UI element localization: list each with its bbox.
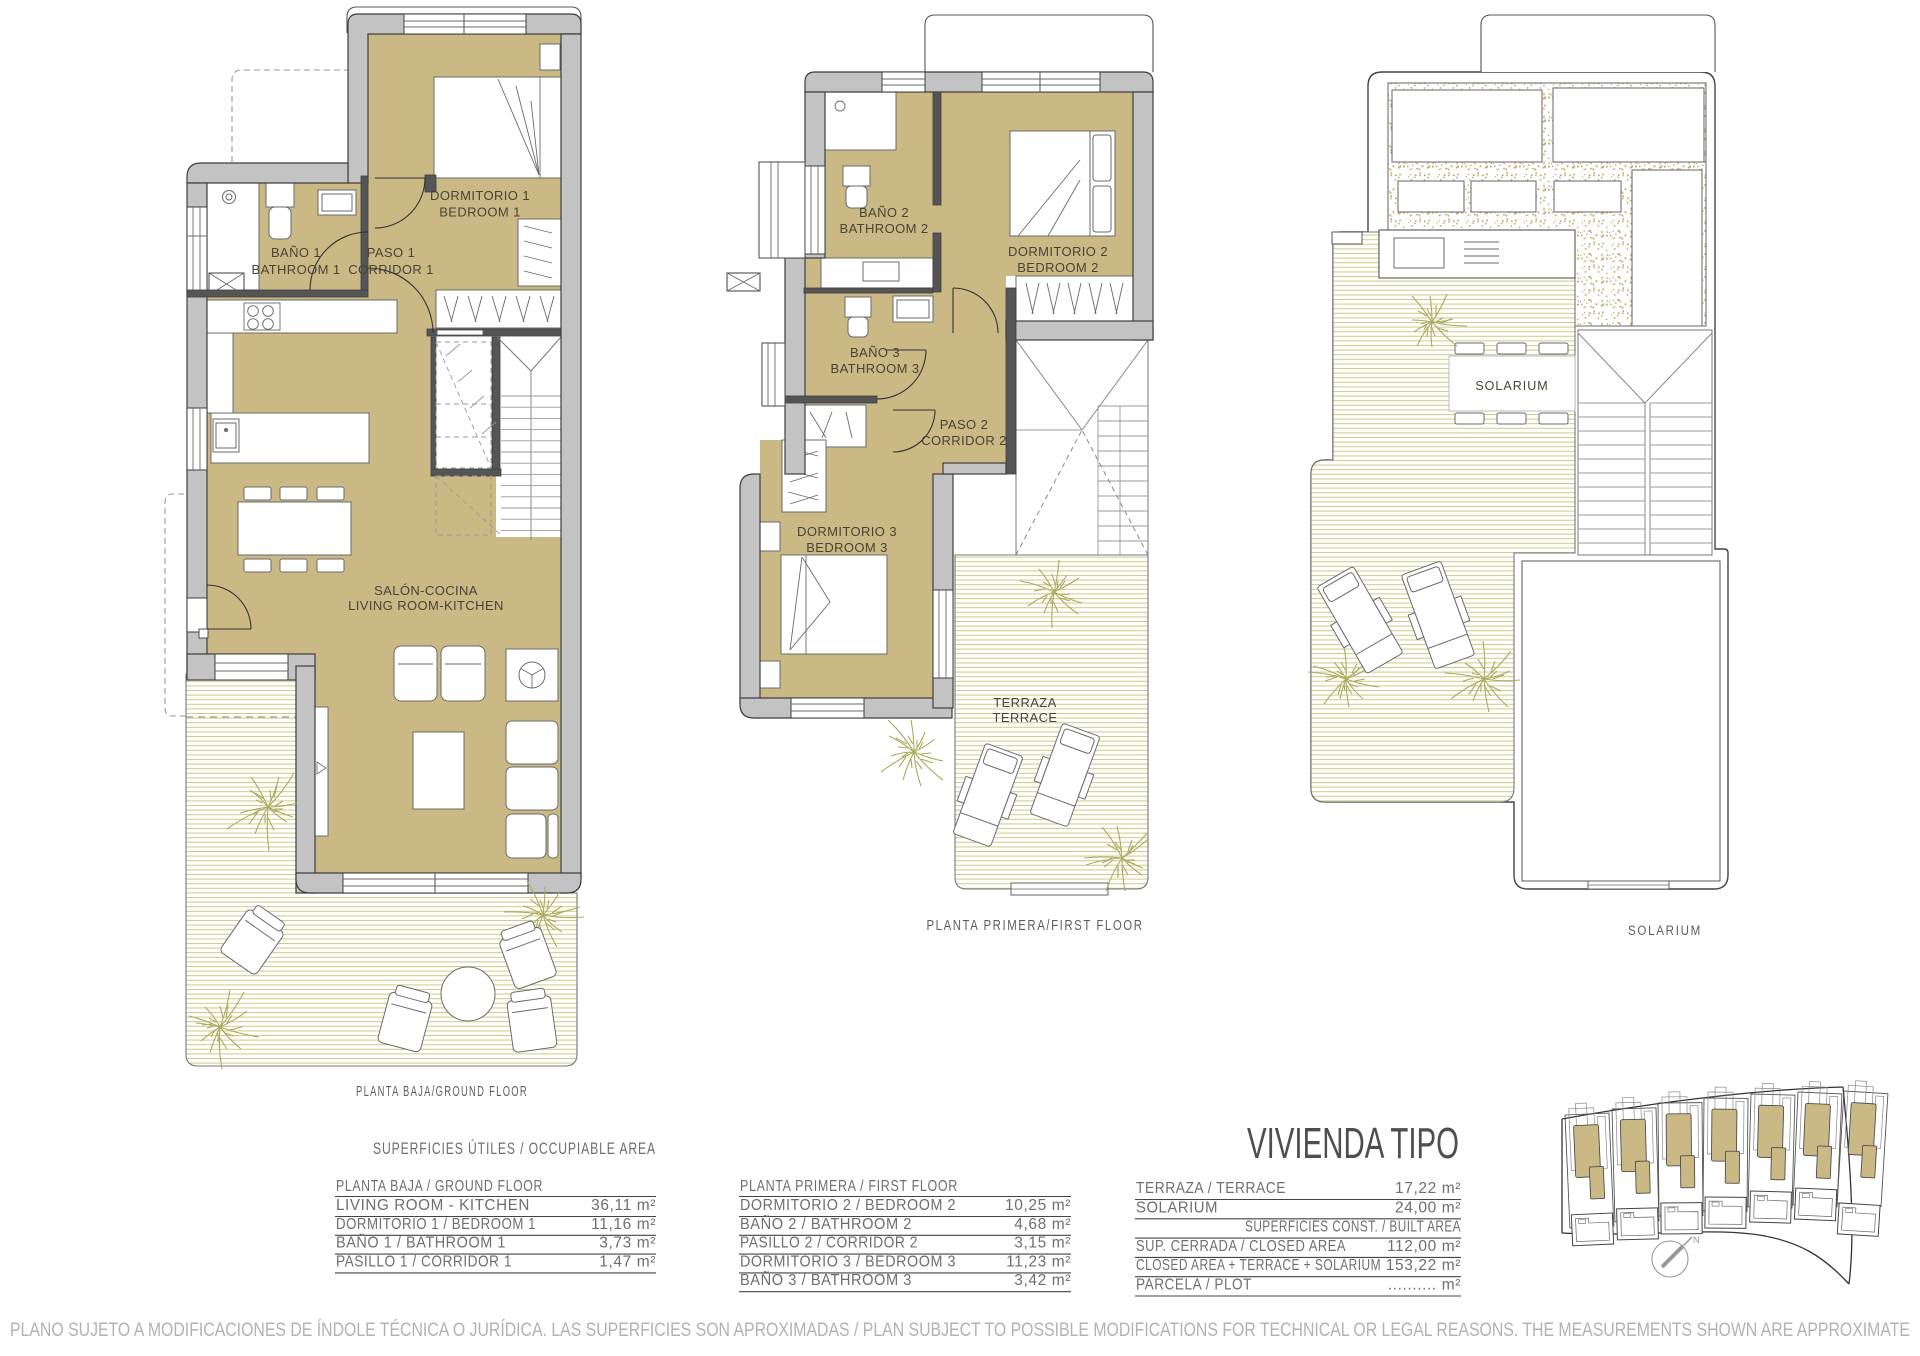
svg-text:BEDROOM 2: BEDROOM 2 xyxy=(1017,260,1099,275)
svg-text:DORMITORIO 1 / BEDROOM 1: DORMITORIO 1 / BEDROOM 1 xyxy=(336,1216,536,1233)
svg-text:PLANTA PRIMERA / FIRST FLOOR: PLANTA PRIMERA / FIRST FLOOR xyxy=(740,1178,958,1195)
svg-text:153,22 m²: 153,22 m² xyxy=(1386,1257,1461,1274)
svg-text:PASO 1: PASO 1 xyxy=(367,245,415,260)
svg-text:CLOSED AREA + TERRACE + SOLARI: CLOSED AREA + TERRACE + SOLARIUM xyxy=(1136,1257,1381,1274)
svg-text:PARCELA / PLOT: PARCELA / PLOT xyxy=(1136,1277,1252,1294)
svg-text:BEDROOM 1: BEDROOM 1 xyxy=(439,205,521,220)
svg-text:VIVIENDA TIPO: VIVIENDA TIPO xyxy=(1247,1119,1459,1168)
svg-text:BEDROOM 3: BEDROOM 3 xyxy=(806,540,888,555)
svg-text:BATHROOM 2: BATHROOM 2 xyxy=(840,221,929,236)
svg-text:SOLARIUM: SOLARIUM xyxy=(1475,379,1548,393)
svg-text:10,25 m²: 10,25 m² xyxy=(1005,1197,1071,1214)
svg-text:PLANTA BAJA/GROUND FLOOR: PLANTA BAJA/GROUND FLOOR xyxy=(356,1084,528,1100)
svg-text:BAÑO 1 / BATHROOM 1: BAÑO 1 / BATHROOM 1 xyxy=(336,1235,506,1252)
svg-text:TERRAZA: TERRAZA xyxy=(993,695,1056,710)
svg-text:17,22 m²: 17,22 m² xyxy=(1395,1180,1461,1197)
svg-text:SOLARIUM: SOLARIUM xyxy=(1628,923,1702,938)
svg-text:DORMITORIO 1: DORMITORIO 1 xyxy=(430,188,530,203)
svg-text:CORRIDOR 1: CORRIDOR 1 xyxy=(348,262,434,277)
svg-text:SUPERFICIES ÚTILES / OCCUPIABL: SUPERFICIES ÚTILES / OCCUPIABLE AREA xyxy=(373,1139,656,1158)
svg-text:BAÑO 3 / BATHROOM 3: BAÑO 3 / BATHROOM 3 xyxy=(740,1272,912,1289)
svg-text:BAÑO 1: BAÑO 1 xyxy=(271,245,321,260)
svg-text:PLANO SUJETO A MODIFICACIONES: PLANO SUJETO A MODIFICACIONES DE ÍNDOLE … xyxy=(10,1320,1910,1341)
svg-text:CORRIDOR 2: CORRIDOR 2 xyxy=(921,433,1007,448)
svg-text:PASILLO 2 / CORRIDOR 2: PASILLO 2 / CORRIDOR 2 xyxy=(740,1235,918,1252)
svg-text:3,15 m²: 3,15 m² xyxy=(1014,1235,1071,1252)
svg-text:DORMITORIO 2: DORMITORIO 2 xyxy=(1008,244,1108,259)
svg-text:3,73 m²: 3,73 m² xyxy=(599,1235,656,1252)
svg-text:LIVING ROOM - KITCHEN: LIVING ROOM - KITCHEN xyxy=(336,1197,530,1214)
svg-text:11,16 m²: 11,16 m² xyxy=(591,1216,656,1233)
svg-text:PLANTA BAJA / GROUND FLOOR: PLANTA BAJA / GROUND FLOOR xyxy=(336,1178,543,1195)
svg-text:BATHROOM 3: BATHROOM 3 xyxy=(831,361,920,376)
svg-text:SUPERFICIES CONST. / BUILT AR: SUPERFICIES CONST. / BUILT AREA xyxy=(1245,1219,1461,1236)
svg-text:112,00 m²: 112,00 m² xyxy=(1387,1238,1461,1255)
svg-text:11,23 m²: 11,23 m² xyxy=(1006,1253,1071,1270)
svg-text:PLANTA PRIMERA/FIRST FLOOR: PLANTA PRIMERA/FIRST FLOOR xyxy=(927,918,1144,934)
svg-text:24,00 m²: 24,00 m² xyxy=(1395,1199,1461,1216)
svg-text:SOLARIUM: SOLARIUM xyxy=(1136,1199,1218,1216)
svg-text:BAÑO 3: BAÑO 3 xyxy=(850,345,900,360)
svg-text:SALÓN-COCINA: SALÓN-COCINA xyxy=(374,583,478,598)
svg-text:4,68 m²: 4,68 m² xyxy=(1014,1216,1071,1233)
svg-text:DORMITORIO 3: DORMITORIO 3 xyxy=(797,524,897,539)
svg-text:PASILLO 1 / CORRIDOR 1: PASILLO 1 / CORRIDOR 1 xyxy=(336,1253,512,1270)
svg-text:N: N xyxy=(1693,1235,1700,1245)
svg-text:BAÑO 2 / BATHROOM 2: BAÑO 2 / BATHROOM 2 xyxy=(740,1216,912,1233)
svg-text:PASO 2: PASO 2 xyxy=(940,417,988,432)
svg-text:36,11 m²: 36,11 m² xyxy=(591,1197,656,1214)
svg-text:3,42 m²: 3,42 m² xyxy=(1014,1272,1071,1289)
svg-text:BATHROOM 1: BATHROOM 1 xyxy=(252,262,341,277)
svg-text:TERRAZA / TERRACE: TERRAZA / TERRACE xyxy=(1136,1180,1286,1197)
svg-text:SUP. CERRADA / CLOSED AREA: SUP. CERRADA / CLOSED AREA xyxy=(1136,1238,1346,1255)
svg-text:TERRACE: TERRACE xyxy=(993,710,1058,725)
svg-text:.......... m²: .......... m² xyxy=(1388,1277,1461,1294)
svg-text:DORMITORIO 2 / BEDROOM 2: DORMITORIO 2 / BEDROOM 2 xyxy=(740,1197,956,1214)
svg-text:DORMITORIO 3 / BEDROOM 3: DORMITORIO 3 / BEDROOM 3 xyxy=(740,1253,956,1270)
svg-text:BAÑO 2: BAÑO 2 xyxy=(859,205,909,220)
svg-text:1,47 m²: 1,47 m² xyxy=(599,1253,656,1270)
svg-text:LIVING ROOM-KITCHEN: LIVING ROOM-KITCHEN xyxy=(348,598,504,613)
